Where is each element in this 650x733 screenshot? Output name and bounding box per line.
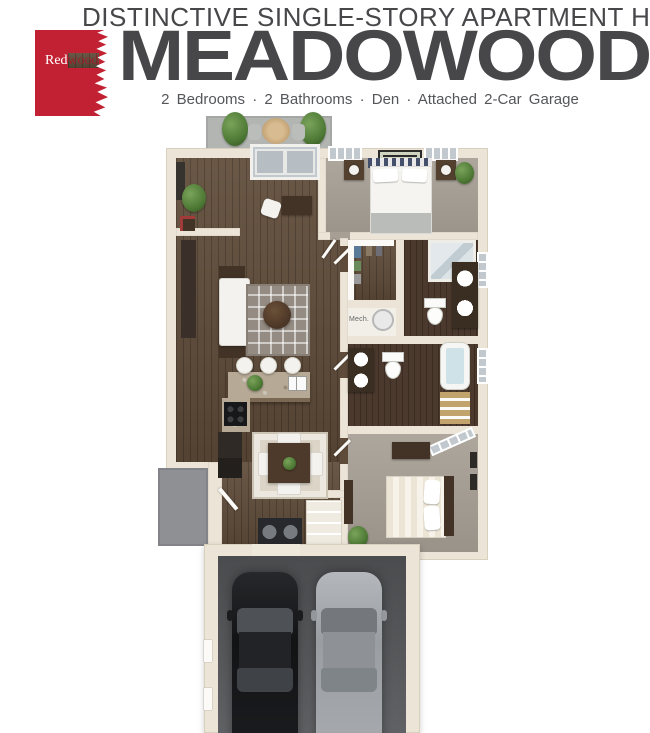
table-plant-icon xyxy=(283,457,296,470)
coffee-table-icon xyxy=(263,301,291,329)
counter-plant-icon xyxy=(247,375,263,391)
patio-table-icon xyxy=(262,118,290,144)
feature-list: 2 Bedrooms · 2 Bathrooms · Den · Attache… xyxy=(92,91,648,108)
media-console-icon xyxy=(181,240,196,338)
end-table-icon xyxy=(219,346,245,358)
den-side-table-icon xyxy=(180,216,195,231)
end-table-icon xyxy=(219,266,245,278)
patio-chair-icon xyxy=(248,124,261,140)
car-windshield xyxy=(321,608,377,634)
car-mirror xyxy=(227,610,233,621)
hanging-clothes-icon xyxy=(354,246,361,258)
hanging-clothes-icon xyxy=(376,246,382,256)
vanity-icon xyxy=(348,348,374,392)
dining-chair-icon xyxy=(277,482,301,495)
nightstand-icon xyxy=(436,160,456,180)
pillow-icon xyxy=(402,168,428,182)
car-mirror xyxy=(311,610,317,621)
black-car-icon xyxy=(232,572,298,733)
pillow-icon xyxy=(423,479,441,504)
logo-text-wood: wood xyxy=(68,53,99,68)
garage-entry-step xyxy=(252,544,300,556)
mech-room-label: Mech. xyxy=(349,316,369,323)
dining-chair-icon xyxy=(310,452,323,476)
bar-stool-icon xyxy=(260,357,277,374)
water-heater-icon xyxy=(372,309,394,331)
refrigerator-icon xyxy=(218,432,242,478)
lamp-icon xyxy=(349,165,359,175)
stove-icon xyxy=(224,402,247,426)
car-mirror xyxy=(381,610,387,621)
patio-chair-icon xyxy=(292,124,305,140)
side-window xyxy=(477,348,488,384)
car-mirror xyxy=(297,610,303,621)
car-roof xyxy=(239,632,291,670)
headboard-icon xyxy=(444,476,454,536)
kitchen-sink-icon xyxy=(288,376,307,391)
pantry-shelves-icon xyxy=(306,500,342,546)
car-rear-window xyxy=(237,668,293,692)
patio-sliding-door xyxy=(250,144,320,180)
washer-dryer-icon xyxy=(258,518,302,546)
master-plant-icon xyxy=(455,162,474,184)
den-plant-icon xyxy=(182,184,206,212)
linen-shelves-icon xyxy=(440,392,470,424)
redwood-logo-wordmark: Redwood xyxy=(45,53,99,69)
entry-stoop xyxy=(158,468,208,546)
glass-pane xyxy=(285,149,315,175)
car-windshield xyxy=(237,608,293,634)
lamp-icon xyxy=(441,165,451,175)
pillow-icon xyxy=(373,168,399,182)
master-window xyxy=(328,146,362,161)
double-vanity-icon xyxy=(452,262,478,328)
car-rear-window xyxy=(321,668,377,692)
glass-pane xyxy=(255,149,285,175)
side-window xyxy=(477,252,488,288)
dresser-icon xyxy=(392,442,430,459)
hanging-clothes-icon xyxy=(354,274,361,284)
bathtub-icon xyxy=(440,342,470,390)
nightstand-icon xyxy=(344,160,364,180)
garage-side-door xyxy=(204,640,212,662)
car-roof xyxy=(323,632,375,670)
wall-art-icon xyxy=(470,452,477,468)
floorplan-flyer: DISTINCTIVE SINGLE-STORY APARTMENT HOMES… xyxy=(0,0,650,733)
hanging-clothes-icon xyxy=(354,261,361,271)
garage-side-door xyxy=(204,688,212,710)
silver-car-icon xyxy=(316,572,382,733)
hanging-clothes-icon xyxy=(366,246,372,256)
wall-art-icon xyxy=(470,474,477,490)
plan-name: MEADOWOOD xyxy=(118,21,650,92)
pillow-icon xyxy=(423,505,441,530)
bar-stool-icon xyxy=(236,357,253,374)
console-table-icon xyxy=(344,480,353,524)
bar-stool-icon xyxy=(284,357,301,374)
logo-text-red: Red xyxy=(45,53,68,68)
patio-plant-icon xyxy=(222,112,248,146)
den-desk-icon xyxy=(282,196,312,215)
